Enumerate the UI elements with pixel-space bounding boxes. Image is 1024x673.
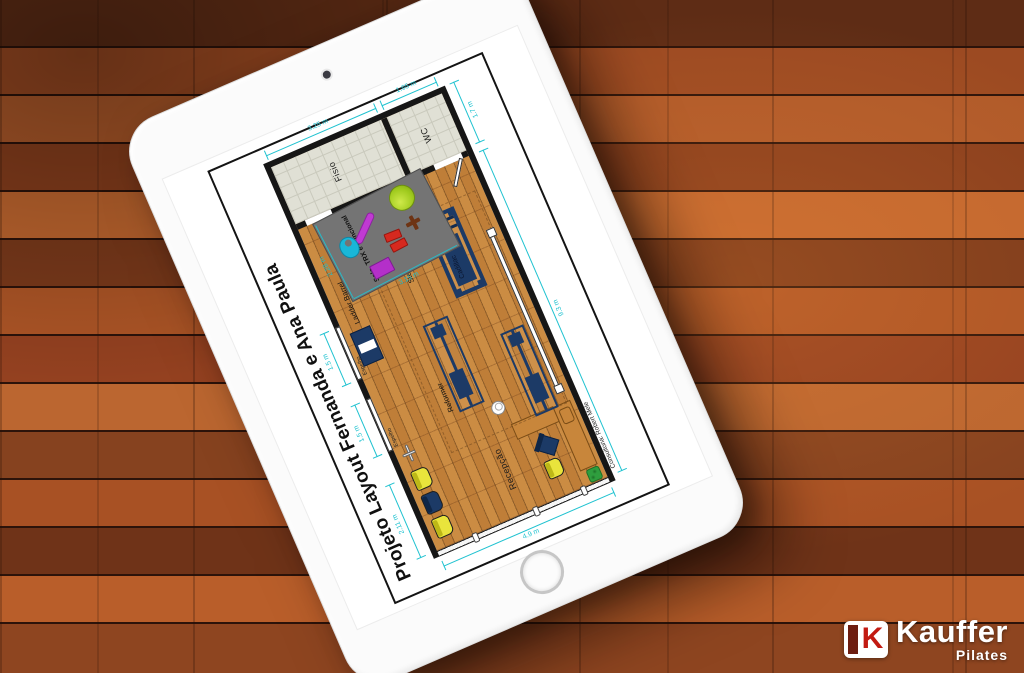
- reformer-headrest: [430, 323, 447, 339]
- wc-room-label: WC: [418, 126, 433, 144]
- reception-label: Recepção: [492, 447, 519, 491]
- k-icon-letter: K: [857, 621, 888, 658]
- reformer-headrest: [508, 331, 525, 347]
- front-camera-dot: [322, 69, 333, 80]
- floorplan-page: Projeto Layout Fernanda e Ana Paula 2.11…: [187, 43, 690, 613]
- wc-door-leaf: [453, 158, 462, 187]
- fisio-room-label: Fisio: [326, 160, 344, 183]
- logo-text: Kauffer Pilates: [896, 617, 1008, 663]
- guest-chair-yellow: [543, 456, 566, 480]
- floorplan-canvas: Projeto Layout Fernanda e Ana Paula 2.11…: [207, 52, 670, 604]
- cadillac-post: [446, 207, 455, 216]
- logo-sub-name: Pilates: [896, 647, 1008, 663]
- kauffer-pilates-logo: K Kauffer Pilates: [844, 617, 1008, 663]
- ladder-barrel-step: [358, 339, 377, 354]
- wood-floor-background: Projeto Layout Fernanda e Ana Paula 2.11…: [0, 0, 1024, 673]
- desk-drawer: [558, 406, 575, 425]
- foam-roller: [354, 211, 375, 245]
- tablet-device: Projeto Layout Fernanda e Ana Paula 2.11…: [117, 0, 755, 673]
- reformer-carriage: [449, 368, 474, 400]
- logo-brand-name: Kauffer: [896, 617, 1008, 646]
- reformer-carriage: [525, 372, 550, 404]
- tablet-screen: Projeto Layout Fernanda e Ana Paula 2.11…: [162, 25, 713, 631]
- studio-room: Fisio WC: [263, 86, 615, 559]
- cadillac-post: [454, 288, 463, 297]
- kauffer-k-icon: K: [844, 621, 888, 658]
- waiting-chair-yellow: [410, 465, 435, 491]
- waiting-chair-navy: [420, 489, 445, 515]
- exercise-ball: [384, 180, 419, 215]
- cadillac-post: [477, 278, 486, 287]
- waiting-chair-yellow: [430, 513, 455, 539]
- office-chair: [538, 435, 559, 456]
